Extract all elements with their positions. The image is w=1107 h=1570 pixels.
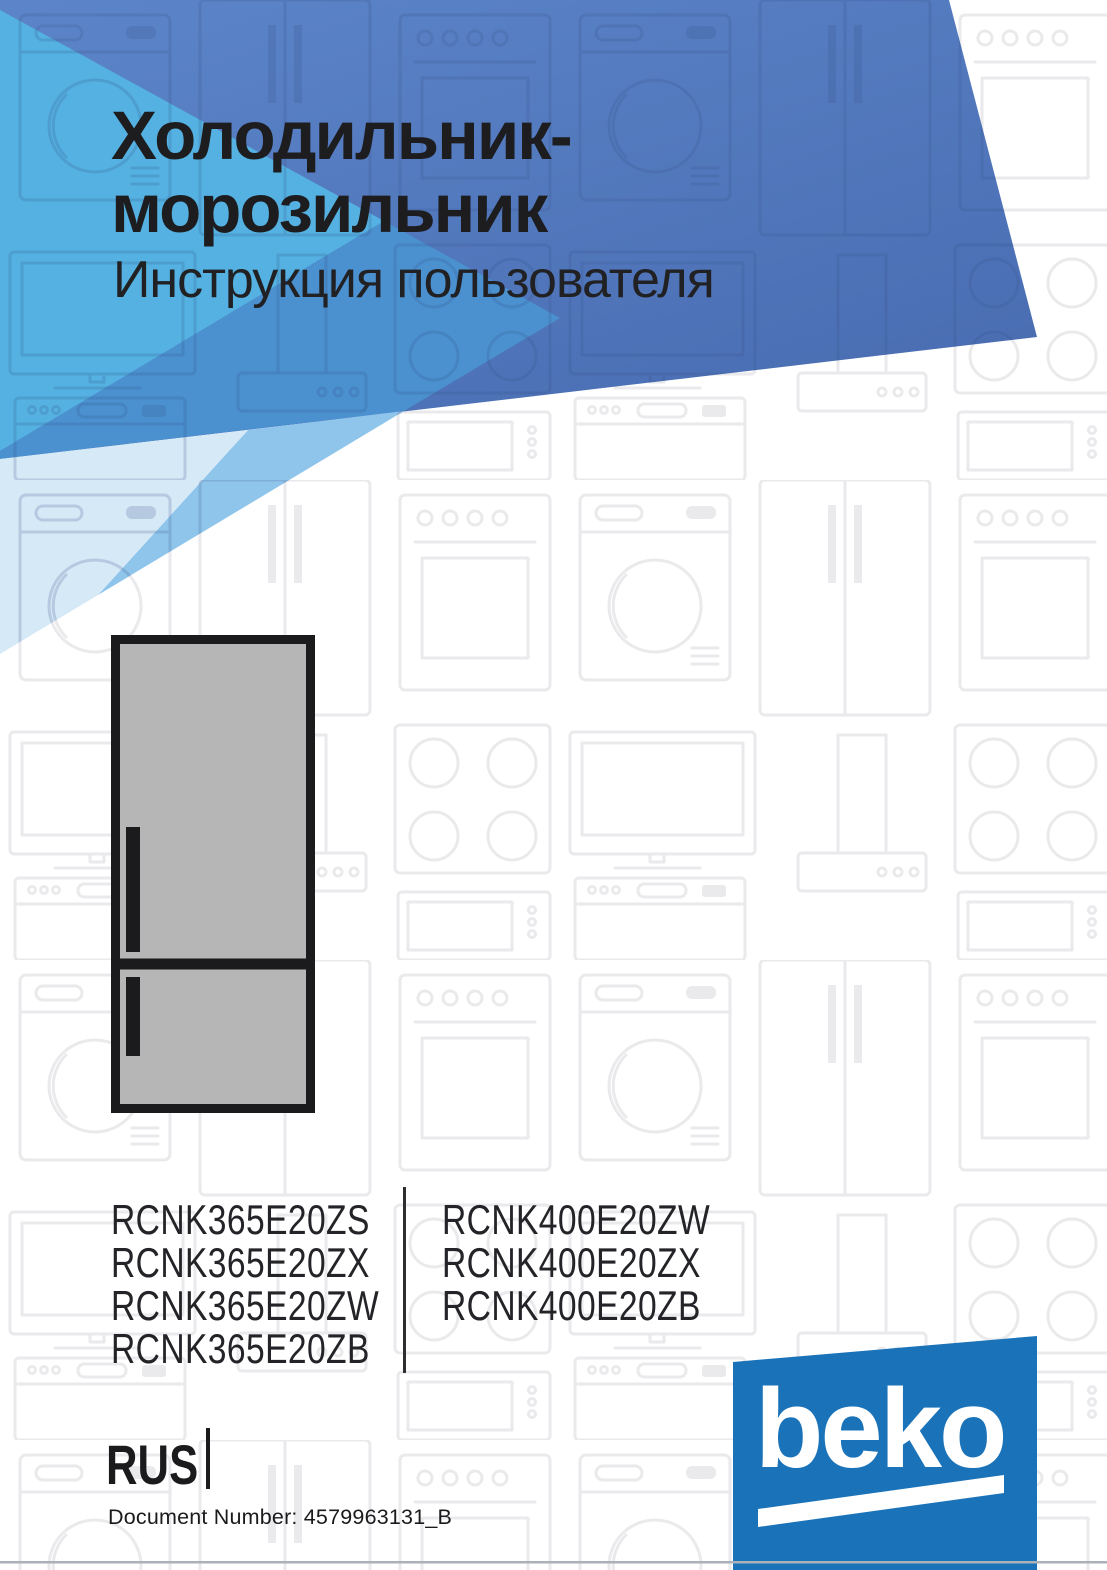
model-number: RCNK400E20ZB bbox=[442, 1284, 710, 1327]
page-title-line1: Холодильник- bbox=[111, 99, 571, 172]
refrigerator-upper-handle bbox=[126, 827, 140, 952]
model-number: RCNK365E20ZB bbox=[111, 1327, 379, 1370]
beko-logo-text: beko bbox=[755, 1366, 1004, 1491]
page-title: Холодильник- морозильник bbox=[111, 99, 571, 245]
document-number: Document Number: 4579963131_B bbox=[108, 1504, 452, 1530]
manual-cover-page: beko Холодильник- морозильник Инструкция… bbox=[0, 0, 1107, 1570]
model-list-left: RCNK365E20ZS RCNK365E20ZX RCNK365E20ZW R… bbox=[111, 1198, 379, 1370]
refrigerator-illustration bbox=[111, 640, 315, 1109]
model-list-right: RCNK400E20ZW RCNK400E20ZX RCNK400E20ZB bbox=[442, 1198, 710, 1327]
model-columns-divider bbox=[403, 1187, 406, 1373]
page-title-line2: морозильник bbox=[111, 172, 571, 245]
page-subtitle: Инструкция пользователя bbox=[113, 251, 714, 309]
beko-logo: beko bbox=[733, 1336, 1037, 1570]
language-code: RUS bbox=[106, 1437, 198, 1493]
model-number: RCNK400E20ZW bbox=[442, 1198, 710, 1241]
model-number: RCNK365E20ZX bbox=[111, 1241, 379, 1284]
model-number: RCNK365E20ZW bbox=[111, 1284, 379, 1327]
refrigerator-body bbox=[116, 640, 311, 1109]
model-number: RCNK365E20ZS bbox=[111, 1198, 379, 1241]
language-divider-bar bbox=[206, 1428, 210, 1489]
refrigerator-lower-handle bbox=[126, 977, 140, 1056]
model-number: RCNK400E20ZX bbox=[442, 1241, 710, 1284]
page-bottom-line bbox=[0, 1561, 1107, 1564]
